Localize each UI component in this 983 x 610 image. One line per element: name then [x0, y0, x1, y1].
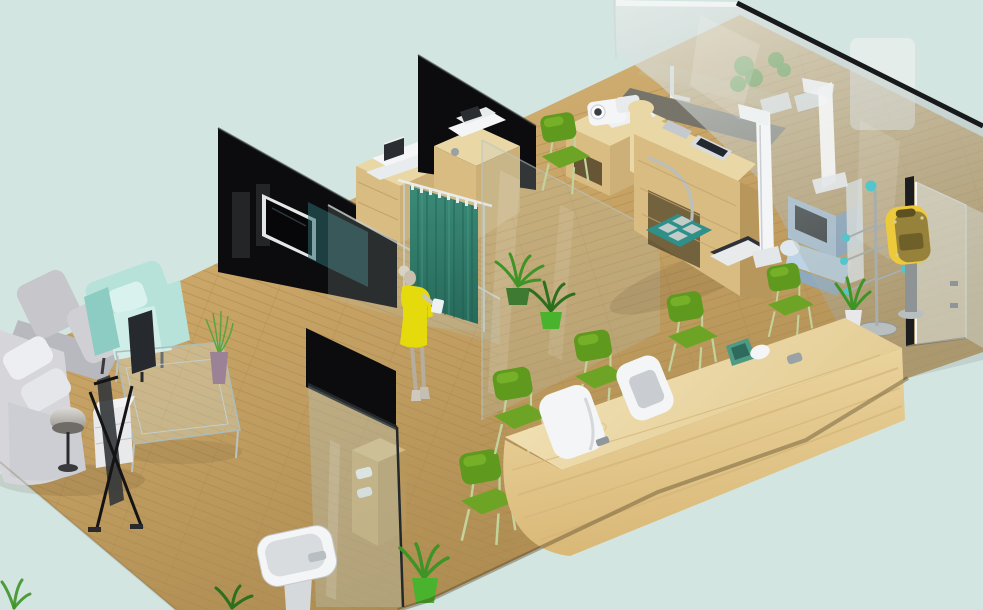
door-hinge	[950, 303, 958, 308]
side-glass-panel	[966, 205, 983, 348]
dispenser-slot	[898, 233, 924, 251]
stand-foot	[88, 527, 101, 532]
screw	[920, 216, 923, 219]
isometric-scene	[0, 0, 983, 610]
plant-pot	[540, 312, 562, 329]
screw	[893, 220, 896, 223]
cabinet-reflection	[232, 192, 250, 258]
plant-pot	[506, 288, 530, 305]
fax-knob	[451, 148, 459, 156]
boot	[411, 390, 421, 401]
table-display	[128, 310, 156, 374]
stand-foot	[130, 524, 143, 529]
lamp-base	[58, 464, 78, 472]
head	[404, 271, 416, 286]
chair-leg	[102, 358, 104, 374]
dispenser-pole	[905, 258, 917, 312]
screw	[895, 253, 898, 256]
render-viewport	[0, 0, 983, 610]
door-glass	[916, 182, 966, 344]
leg	[422, 347, 424, 389]
purple-vase	[210, 352, 228, 384]
rack-pole	[875, 190, 877, 326]
door-hinge	[950, 281, 958, 286]
bp-bore-dark	[594, 108, 602, 116]
